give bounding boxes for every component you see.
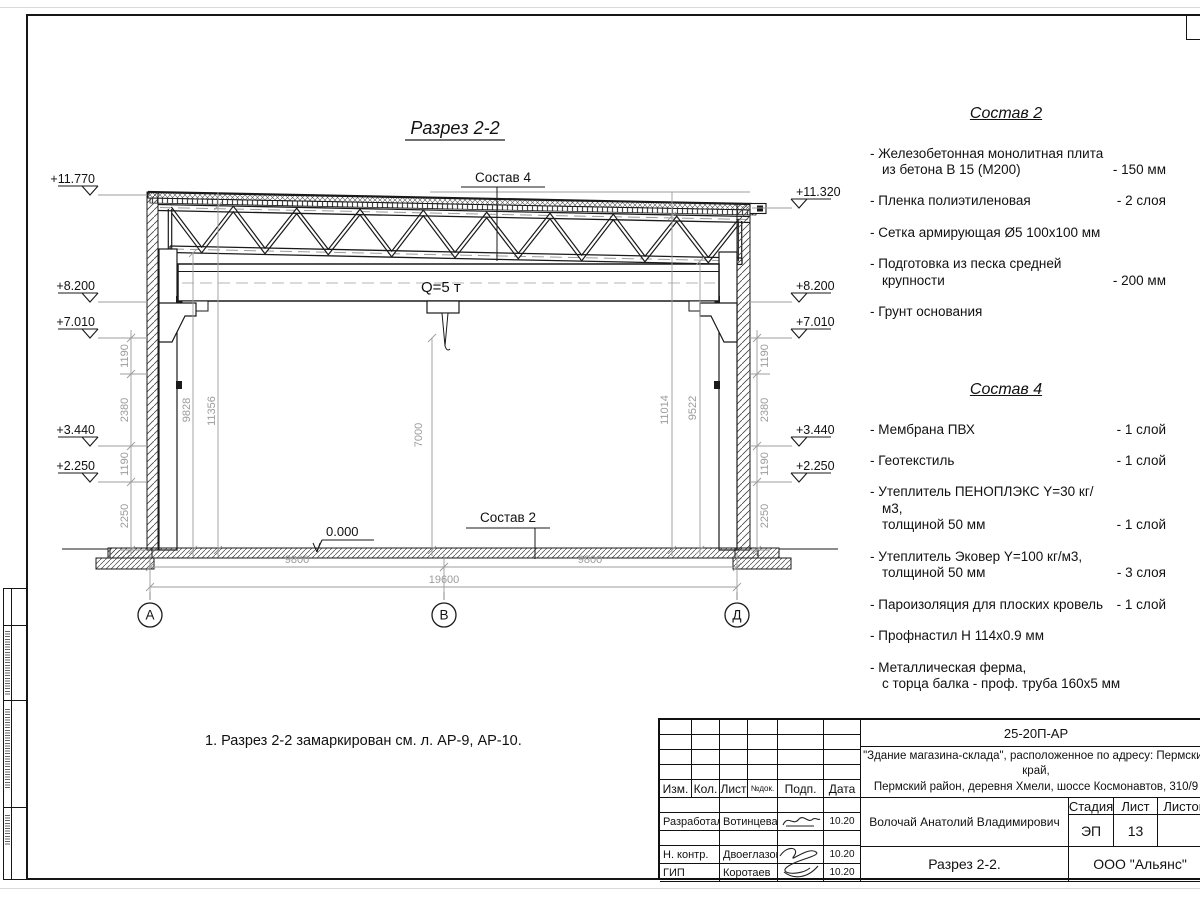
elevation-label: +2.250 [796, 459, 835, 473]
signature [774, 842, 824, 882]
page-edge-bottom [0, 888, 1200, 889]
layer-name: - Сетка армирующая Ø5 100х100 мм [870, 225, 1100, 241]
row-date: 10.20 [824, 846, 861, 864]
sostav2-title: Состав 2 [870, 104, 1142, 124]
left-column [159, 249, 177, 550]
elevation-label: +8.200 [56, 279, 95, 293]
svg-text:7000: 7000 [413, 423, 425, 447]
sostav4-title: Состав 4 [870, 380, 1142, 400]
layer-qty: - 200 мм [1105, 273, 1166, 289]
layer-name: - Железобетонная монолитная плита из бет… [870, 146, 1103, 179]
col-podp: Подп. [778, 780, 824, 798]
svg-text:2250: 2250 [759, 504, 771, 528]
row-role: Разработал [660, 813, 720, 831]
elevation-label: +11.770 [50, 172, 95, 186]
title-block: Изм. Кол. Лист №док. Подп. Дата Разработ… [658, 718, 1200, 880]
project-line1: "Здание магазина-склада", расположенное … [861, 749, 1200, 780]
svg-text:2380: 2380 [119, 398, 131, 422]
col-list: Лист [720, 780, 748, 798]
layer-qty: - 1 слой [1109, 517, 1166, 533]
elevation-label: +7.010 [796, 315, 835, 329]
elevation-label: +11.320 [796, 185, 841, 199]
company-name: ООО "Альянс" [1069, 847, 1200, 882]
layer-qty: - 1 слой [1109, 453, 1166, 469]
svg-text:Д: Д [732, 608, 741, 623]
left-wall [147, 192, 158, 550]
svg-text:9828: 9828 [181, 398, 193, 422]
layer-name: - Подготовка из песка средней крупности [870, 256, 1061, 289]
sheet-note: 1. Разрез 2-2 замаркирован см. л. АР-9, … [205, 733, 522, 749]
layer-name: - Геотекстиль [870, 453, 958, 469]
elevation-label: +2.250 [56, 459, 95, 473]
svg-text:В: В [439, 608, 448, 623]
col-izm: Изм. [660, 780, 692, 798]
layer-name: - Мембрана ПВХ [870, 422, 975, 438]
sheet-label: Лист [1114, 798, 1158, 815]
row-role: ГИП [660, 864, 720, 882]
svg-text:1190: 1190 [759, 344, 771, 368]
elevation-marks-left [58, 186, 98, 482]
layer-qty: - 1 слой [1109, 422, 1166, 438]
svg-text:19600: 19600 [429, 574, 460, 586]
left-footing [108, 548, 152, 558]
svg-text:2250: 2250 [119, 504, 131, 528]
axis-marks: А В Д [138, 592, 749, 627]
col-kol: Кол. [692, 780, 720, 798]
layer-qty: - 3 слоя [1109, 565, 1166, 581]
layer-qty: - 1 слой [1109, 597, 1166, 613]
floor-slab [62, 548, 838, 569]
sostav4-list: Состав 4 - Мембрана ПВХ- 1 слой - Геотек… [870, 380, 1200, 708]
svg-text:0.000: 0.000 [326, 524, 359, 539]
svg-text:А: А [145, 608, 154, 623]
supervisor-name: Волочай Анатолий Владимирович [861, 798, 1069, 847]
layer-name: - Утеплитель ПЕНОПЛЭКС Y=30 кг/м3, толщи… [870, 484, 1109, 533]
col-ndok: №док. [748, 780, 778, 798]
col-data: Дата [824, 780, 861, 798]
layer-name: - Пленка полиэтиленовая [870, 193, 1031, 209]
sheet-value: 13 [1114, 815, 1158, 847]
svg-text:11356: 11356 [206, 396, 218, 426]
sheets-label: Листов [1158, 798, 1200, 815]
layer-name: - Пароизоляция для плоских кровель [870, 597, 1103, 613]
layer-name: - Профнастил Н 114х0.9 мм [870, 628, 1044, 644]
svg-text:9800: 9800 [285, 554, 309, 566]
stage-value: ЭП [1069, 815, 1114, 847]
layer-qty: - 2 слоя [1109, 193, 1166, 209]
sostav2-callout: Состав 2 [480, 510, 536, 525]
svg-text:9800: 9800 [578, 554, 602, 566]
svg-text:11014: 11014 [659, 395, 671, 425]
right-wall [737, 204, 750, 550]
doc-number: 25-20П-АР [861, 720, 1200, 747]
layer-name: - Утеплитель Эковер Y=100 кг/м3, толщино… [870, 549, 1082, 582]
elevation-label: +3.440 [56, 423, 95, 437]
left-stamp-microtext [5, 815, 10, 845]
signature [780, 812, 822, 830]
svg-text:1190: 1190 [119, 452, 131, 476]
project-description: "Здание магазина-склада", расположенное … [861, 747, 1200, 798]
elevation-label: +3.440 [796, 423, 835, 437]
svg-text:9522: 9522 [687, 396, 699, 420]
drawing-title-cell: Разрез 2-2. [861, 847, 1069, 882]
sostav2-list: Состав 2 - Железобетонная монолитная пли… [870, 104, 1200, 336]
row-date: 10.20 [824, 864, 861, 882]
elevation-label: +7.010 [56, 315, 95, 329]
view-title: Разрез 2-2 [410, 118, 499, 138]
row-name: Вотинцева [720, 813, 778, 831]
drawing-sheet: { "drawing": { "title": "Разрез 2-2", "s… [0, 0, 1200, 900]
right-column [719, 252, 737, 550]
svg-text:2380: 2380 [759, 398, 771, 422]
sheets-value [1158, 815, 1200, 847]
row-role: Н. контр. [660, 846, 720, 864]
left-stamp-microtext [5, 709, 10, 789]
row-name: Двоеглазов [720, 846, 778, 864]
svg-text:1190: 1190 [119, 344, 131, 368]
layer-name: - Металлическая ферма, с торца балка - п… [870, 660, 1120, 693]
elevation-label: +8.200 [796, 279, 835, 293]
row-date: 10.20 [824, 813, 861, 831]
project-line2: Пермский район, деревня Хмели, шоссе Кос… [874, 780, 1198, 796]
stage-label: Стадия [1069, 798, 1114, 815]
row-name: Коротаев [720, 864, 778, 882]
crane-capacity-label: Q=5 т [421, 279, 461, 296]
elevation-marks-right [791, 199, 831, 482]
sostav4-callout: Состав 4 [475, 170, 531, 185]
svg-text:1190: 1190 [759, 452, 771, 476]
layer-qty: - 150 мм [1105, 162, 1166, 178]
layer-name: - Грунт основания [870, 304, 982, 320]
